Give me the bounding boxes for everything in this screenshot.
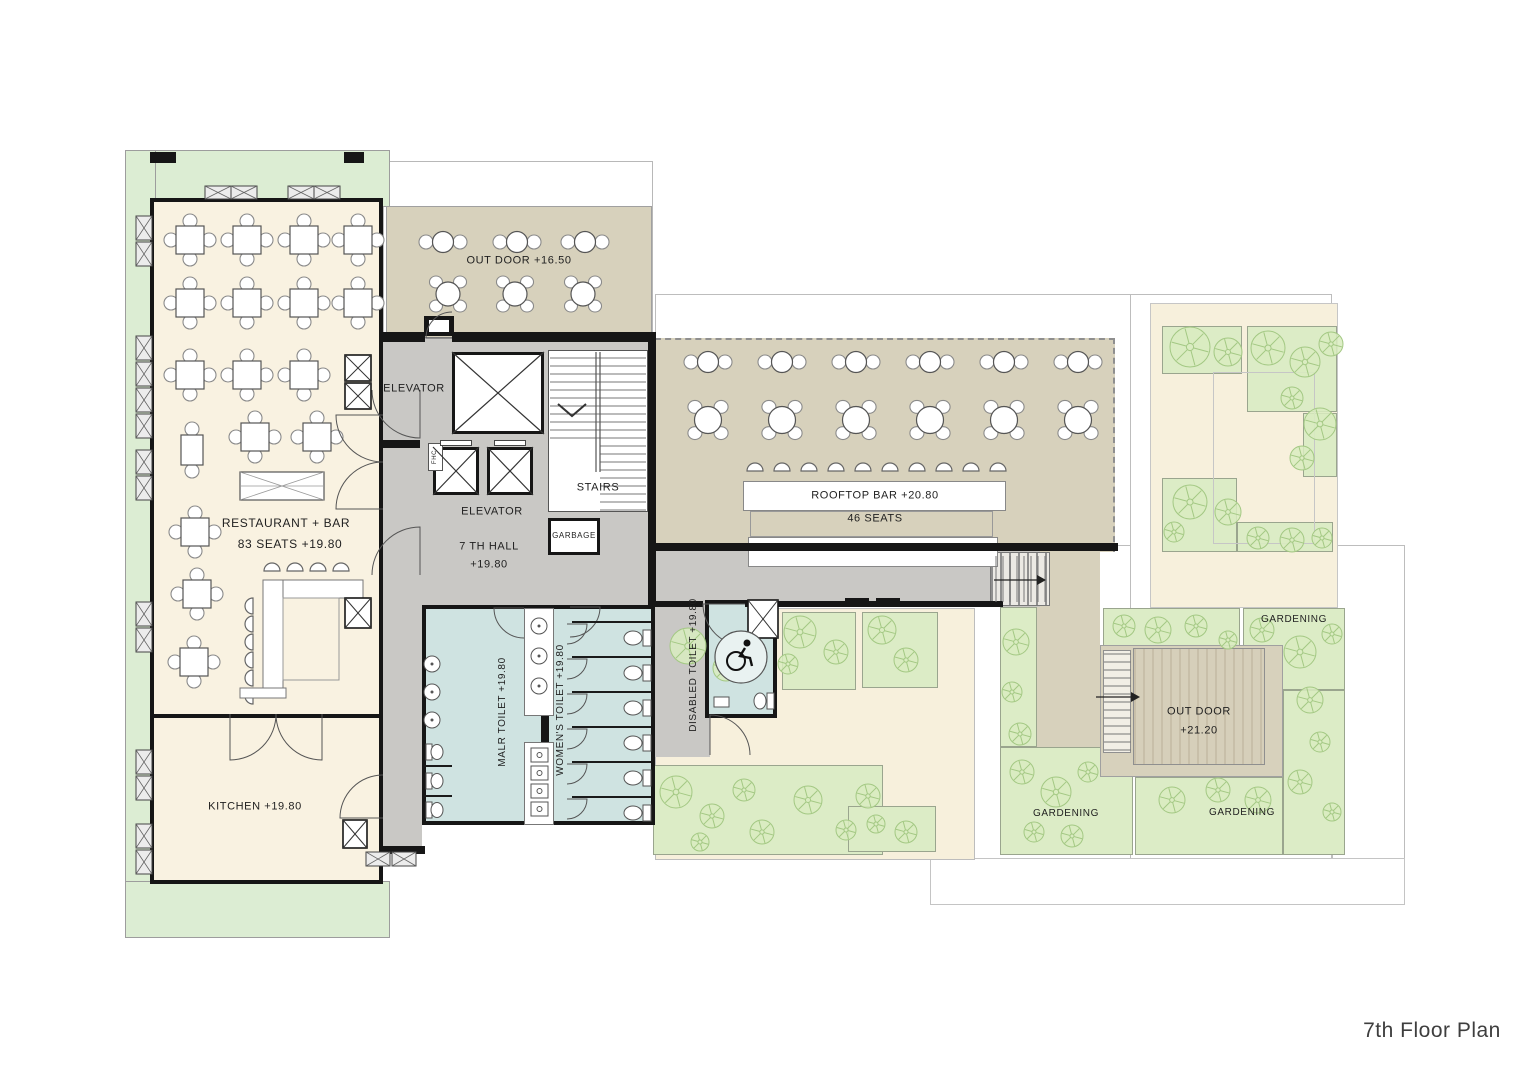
wall-segment xyxy=(383,332,425,342)
garden-patch xyxy=(848,806,936,852)
room-label-fhc: FHC xyxy=(432,450,438,464)
wall-segment xyxy=(150,152,176,163)
wall-segment xyxy=(745,601,1003,607)
deck-stairs xyxy=(1103,650,1131,753)
room-label-stairs: STAIRS xyxy=(577,483,620,494)
room-label-rooftop-bar-20-80: ROOFTOP BAR +20.80 xyxy=(811,491,938,502)
hall-strip xyxy=(379,608,422,850)
room-label-garbage: GARBAGE xyxy=(552,532,596,540)
elevator-sill xyxy=(440,440,472,446)
garden-patch xyxy=(862,612,938,688)
sink-counter xyxy=(524,608,554,716)
wall-segment xyxy=(344,152,364,163)
door-gap xyxy=(429,320,449,332)
room-label-gardening: GARDENING xyxy=(1209,808,1275,818)
plan-title: 7th Floor Plan xyxy=(1363,1019,1501,1043)
room-label-46-seats: 46 SEATS xyxy=(847,514,902,525)
wall-segment xyxy=(845,598,869,605)
garden-patch xyxy=(782,612,856,690)
wall-segment xyxy=(655,543,1118,551)
room-label-83-seats-19-80: 83 SEATS +19.80 xyxy=(238,538,343,550)
room-label-restaurant-bar: RESTAURANT + BAR xyxy=(222,517,350,529)
garden-patch xyxy=(1283,690,1345,855)
terrace-bottom xyxy=(125,881,390,938)
disabled-toilet xyxy=(705,600,777,718)
floor-plan: OUT DOOR +16.50ELEVATORELEVATORSTAIRSGAR… xyxy=(0,0,1523,1076)
garden-patch xyxy=(1103,608,1240,648)
room-label-disabled-toilet-19-80: DISABLED TOILET +19.80 xyxy=(689,598,699,732)
window-x xyxy=(392,852,416,866)
room-label-malr-toilet-19-80: MALR TOILET +19.80 xyxy=(498,657,508,766)
window-box xyxy=(392,852,416,866)
room-label-out-door-16-50: OUT DOOR +16.50 xyxy=(466,256,571,267)
hall-by-disabled xyxy=(655,607,710,757)
room-label-out-door: OUT DOOR xyxy=(1167,707,1231,718)
room-label-elevator: ELEVATOR xyxy=(461,507,523,518)
garden-patch xyxy=(1162,326,1242,374)
wall-segment xyxy=(379,846,425,854)
wall-segment xyxy=(452,332,656,342)
corridor-stairs xyxy=(990,552,1050,606)
room-label-gardening: GARDENING xyxy=(1261,615,1327,625)
urinal-counter xyxy=(524,742,554,825)
elevator-shaft-b xyxy=(487,447,533,495)
room-label-19-80: +19.80 xyxy=(470,560,508,571)
wall-segment xyxy=(383,440,420,448)
wall-segment xyxy=(648,332,656,607)
room-label-women-s-toilet-19-80: WOMEN'S TOILET +19.80 xyxy=(556,644,566,776)
rooftop-counter-front xyxy=(748,537,998,567)
window-x xyxy=(392,852,416,866)
kitchen xyxy=(150,714,383,884)
bottom-outline-band xyxy=(930,858,1405,905)
wall-segment xyxy=(876,598,900,605)
restaurant xyxy=(150,198,383,718)
elevator-sill xyxy=(494,440,526,446)
elevator-shaft-large xyxy=(452,352,544,434)
garden-patch xyxy=(1000,607,1037,747)
room-label-21-20: +21.20 xyxy=(1180,726,1218,737)
room-label-kitchen-19-80: KITCHEN +19.80 xyxy=(208,802,302,813)
courtyard-path xyxy=(1213,372,1315,544)
room-label-7-th-hall: 7 TH HALL xyxy=(459,542,519,553)
room-label-gardening: GARDENING xyxy=(1033,809,1099,819)
room-label-elevator: ELEVATOR xyxy=(383,384,445,395)
